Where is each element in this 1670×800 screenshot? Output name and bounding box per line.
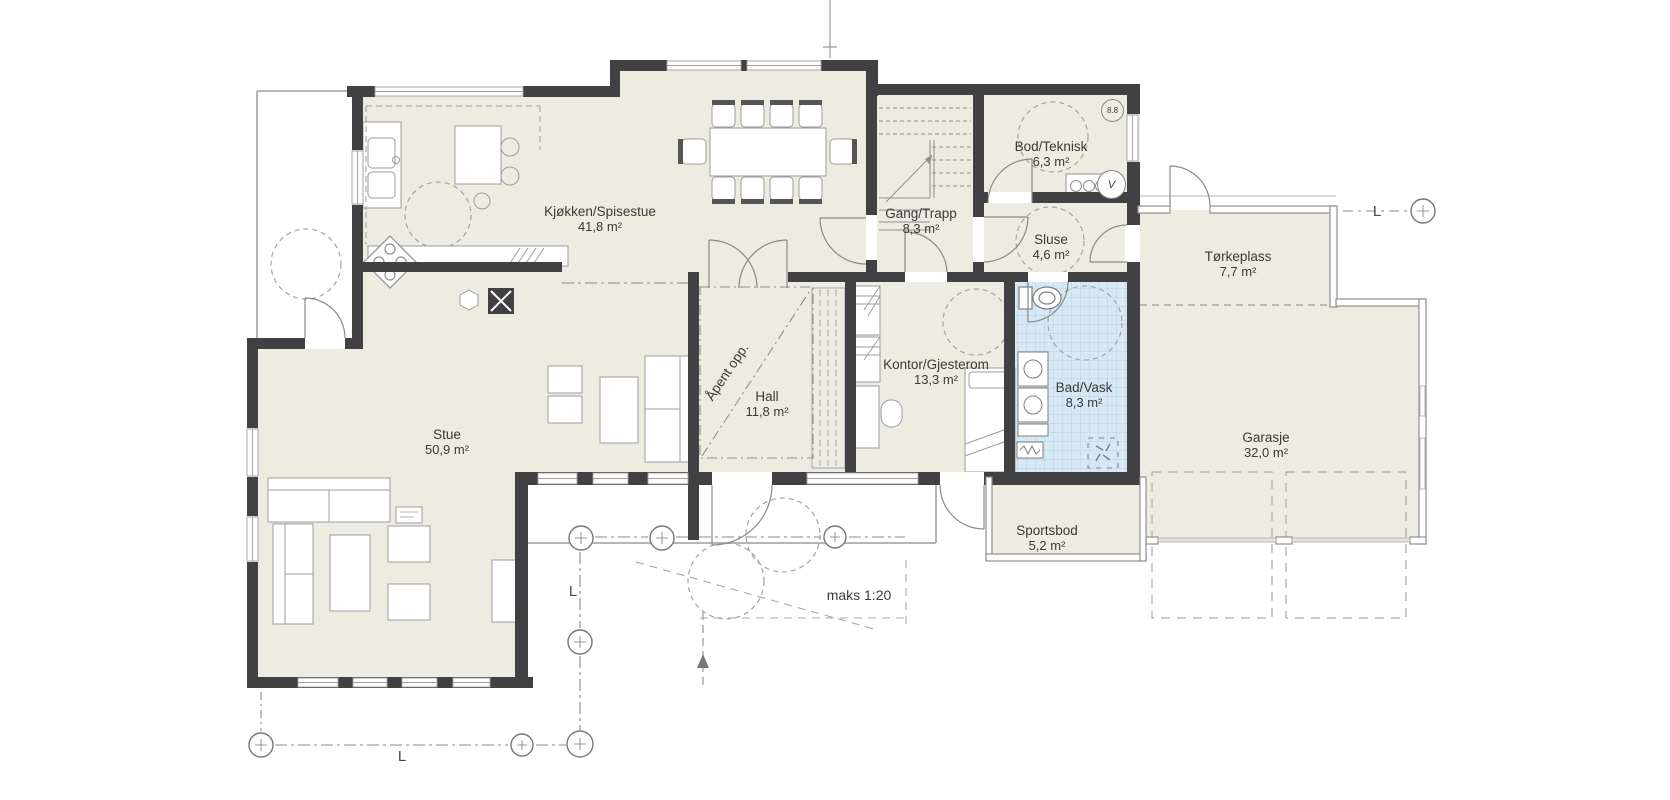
room-label-bad-vask: Bad/Vask 8,3 m² xyxy=(1056,380,1113,410)
room-name: Sluse xyxy=(1033,232,1070,247)
grid-letter-bottom: L xyxy=(398,748,406,765)
room-label-kitchen-dining: Kjøkken/Spisestue 41,8 m² xyxy=(544,204,656,234)
room-label-hall: Hall 11,8 m² xyxy=(745,389,788,419)
room-area: 11,8 m² xyxy=(745,404,788,419)
room-name: Garasje xyxy=(1242,430,1289,445)
room-area: 8,3 m² xyxy=(1056,395,1113,410)
room-label-torkeplass: Tørkeplass 7,7 m² xyxy=(1205,249,1272,279)
room-area: 13,3 m² xyxy=(883,372,989,387)
room-area: 4,6 m² xyxy=(1033,247,1070,262)
room-label-kontor-gjesterom: Kontor/Gjesterom 13,3 m² xyxy=(883,357,989,387)
room-area: 6,3 m² xyxy=(1015,154,1088,169)
room-name: Kjøkken/Spisestue xyxy=(544,204,656,219)
room-label-gang-trapp: Gang/Trapp 8,3 m² xyxy=(885,206,957,236)
room-area: 50,9 m² xyxy=(425,442,469,457)
chimney xyxy=(488,288,514,314)
room-label-stue: Stue 50,9 m² xyxy=(425,427,469,457)
grid-letter-right: L xyxy=(1373,203,1381,220)
room-area: 41,8 m² xyxy=(544,219,656,234)
slope-arrow-marker xyxy=(697,654,709,668)
stool-hexagon xyxy=(460,290,478,310)
room-label-garasje: Garasje 32,0 m² xyxy=(1242,430,1289,460)
room-name: Bad/Vask xyxy=(1056,380,1113,395)
water-heater-symbol: V xyxy=(1097,170,1126,199)
dining-table xyxy=(710,128,826,176)
room-area: 7,7 m² xyxy=(1205,264,1272,279)
room-name: Hall xyxy=(745,389,788,404)
ramp-slope-label: maks 1:20 xyxy=(827,587,892,603)
floor-plan-drawing xyxy=(0,0,1670,800)
kitchen-counter-sink xyxy=(363,122,401,208)
grid-letter-terrace: L xyxy=(569,583,577,600)
room-name: Stue xyxy=(425,427,469,442)
floor-plan-page: Kjøkken/Spisestue 41,8 m² Gang/Trapp 8,3… xyxy=(0,0,1670,800)
room-name: Tørkeplass xyxy=(1205,249,1272,264)
reference-bubble: 8.8 xyxy=(1101,99,1124,122)
room-area: 8,3 m² xyxy=(885,221,957,236)
section-line-top xyxy=(823,0,837,58)
room-name: Kontor/Gjesterom xyxy=(883,357,989,372)
room-label-sportsbod: Sportsbod 5,2 m² xyxy=(1016,523,1078,553)
room-label-bod-teknisk: Bod/Teknisk 6,3 m² xyxy=(1015,139,1088,169)
toilet xyxy=(1019,287,1061,309)
room-name: Gang/Trapp xyxy=(885,206,957,221)
room-name: Sportsbod xyxy=(1016,523,1078,538)
room-name: Bod/Teknisk xyxy=(1015,139,1088,154)
room-area: 32,0 m² xyxy=(1242,445,1289,460)
room-area: 5,2 m² xyxy=(1016,538,1078,553)
bathroom-heater xyxy=(1017,442,1043,458)
room-label-sluse: Sluse 4,6 m² xyxy=(1033,232,1070,262)
